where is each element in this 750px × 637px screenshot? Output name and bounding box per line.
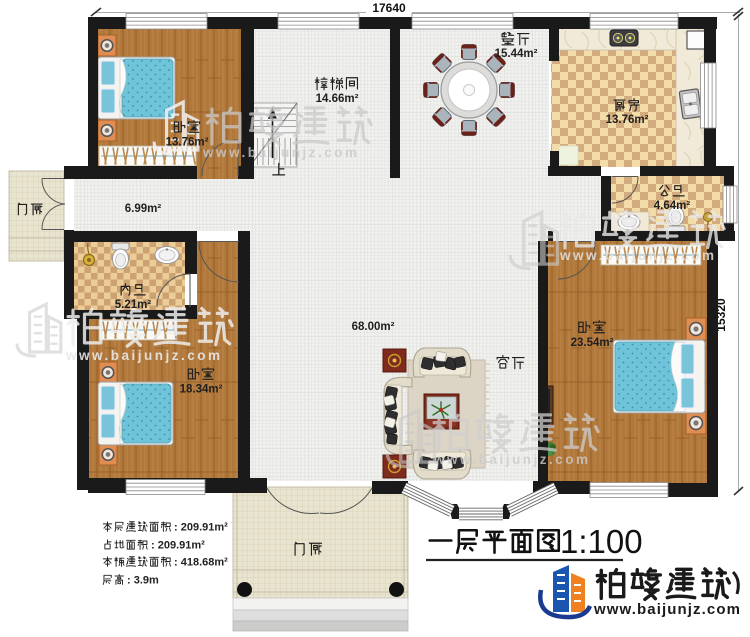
svg-text:23.54m²: 23.54m²: [571, 337, 614, 349]
svg-text:17640: 17640: [372, 1, 406, 15]
svg-text:www.baijunjz.com: www.baijunjz.com: [593, 601, 741, 618]
svg-text:5.21m²: 5.21m²: [115, 299, 152, 311]
svg-text:6.99m²: 6.99m²: [125, 203, 162, 215]
svg-text:1:100: 1:100: [560, 523, 643, 560]
svg-text:www.baijunjz.com: www.baijunjz.com: [65, 348, 223, 363]
svg-text:15.44m²: 15.44m²: [495, 48, 538, 60]
svg-text:www.baijunjz.com: www.baijunjz.com: [433, 452, 591, 467]
svg-text:18.34m²: 18.34m²: [180, 384, 223, 396]
svg-text:13.76m²: 13.76m²: [166, 137, 209, 149]
svg-text:68.00m²: 68.00m²: [352, 321, 395, 333]
svg-text:: 209.91m²: : 209.91m²: [174, 522, 228, 534]
svg-text:14.66m²: 14.66m²: [316, 93, 359, 105]
svg-text:www.baijunjz.com: www.baijunjz.com: [202, 145, 360, 160]
svg-text:: 209.91m²: : 209.91m²: [151, 540, 205, 552]
svg-text:: 3.9m: : 3.9m: [127, 575, 159, 587]
svg-text:: 418.68m²: : 418.68m²: [174, 557, 228, 569]
svg-text:4.64m²: 4.64m²: [654, 200, 691, 212]
svg-text:www.baijunjz.com: www.baijunjz.com: [559, 248, 717, 263]
svg-text:13.76m²: 13.76m²: [606, 114, 649, 126]
